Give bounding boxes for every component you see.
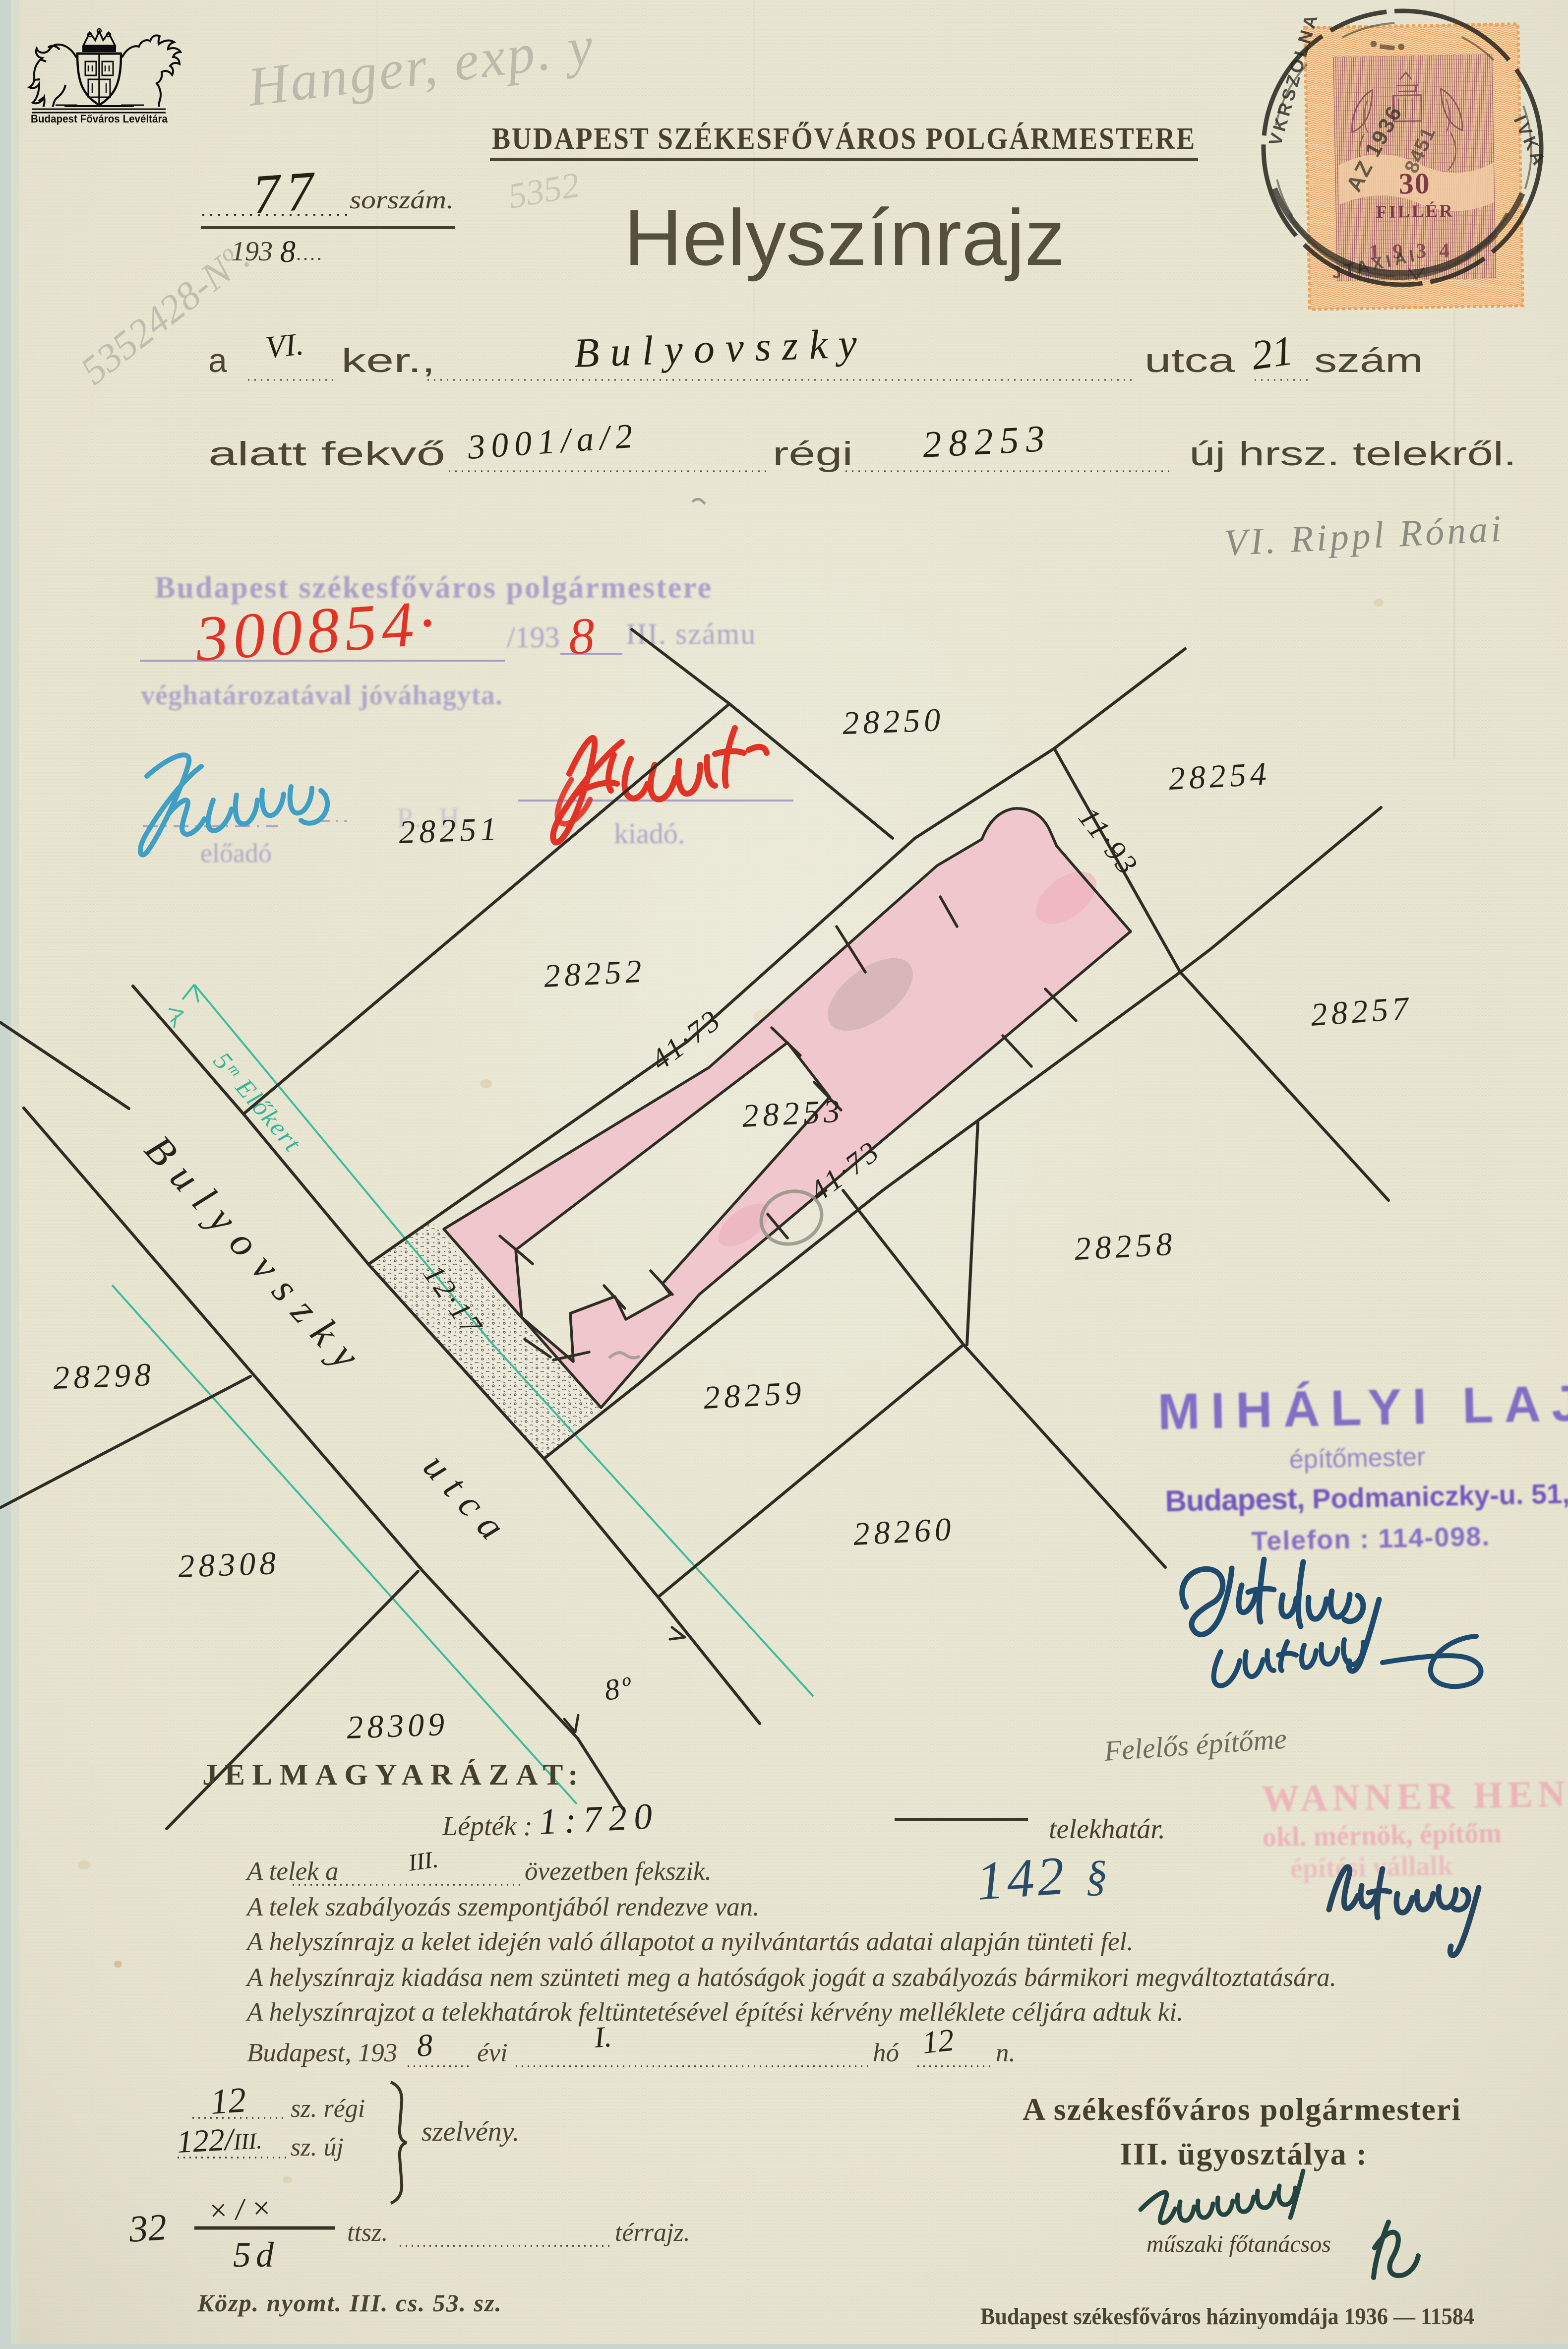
svg-text:műszaki főtanácsos: műszaki főtanácsos [1146, 2231, 1331, 2257]
svg-text:193: 193 [231, 236, 273, 267]
svg-text:Telefon : 114-098.: Telefon : 114-098. [1251, 1522, 1491, 1556]
svg-text:véghatározatával jóváhagyta.: véghatározatával jóváhagyta. [141, 680, 503, 711]
svg-text:VI.: VI. [264, 326, 305, 365]
svg-text:Helyszínrajz: Helyszínrajz [624, 193, 1065, 282]
svg-text:MIHÁLYI LAJOS: MIHÁLYI LAJOS [1157, 1372, 1568, 1440]
svg-text:A helyszínrajzot a telekhatáro: A helyszínrajzot a telekhatárok feltünte… [245, 1998, 1183, 2027]
svg-text:WANNER HENR: WANNER HENR [1262, 1772, 1568, 1820]
svg-text:előadó: előadó [200, 838, 272, 868]
svg-text:BUDAPEST SZÉKESFŐVÁROS POLGÁRM: BUDAPEST SZÉKESFŐVÁROS POLGÁRMESTERE [492, 122, 1196, 156]
svg-text:A telek a: A telek a [245, 1857, 338, 1886]
svg-text:28260: 28260 [852, 1511, 956, 1552]
svg-text:építőmester: építőmester [1289, 1442, 1426, 1474]
svg-text:szelvény.: szelvény. [422, 2116, 519, 2147]
svg-text:FILLÉR: FILLÉR [1376, 201, 1454, 222]
svg-text:ttsz.: ttsz. [347, 2219, 388, 2247]
svg-text:kiadó.: kiadó. [614, 817, 685, 850]
svg-text:szám: szám [1314, 342, 1423, 379]
svg-text:12: 12 [920, 2022, 956, 2060]
svg-text:övezetben fekszik.: övezetben fekszik. [525, 1857, 712, 1886]
svg-text:8: 8 [280, 235, 296, 269]
svg-text:régi: régi [773, 435, 853, 473]
svg-text:építési vállalk: építési vállalk [1290, 1851, 1453, 1884]
svg-text:28253: 28253 [741, 1093, 845, 1134]
svg-text:sz. régi: sz. régi [291, 2095, 365, 2123]
svg-text:I.: I. [593, 2020, 613, 2054]
svg-text:III. ügyosztálya :: III. ügyosztálya : [1120, 2136, 1368, 2171]
svg-text:28254: 28254 [1168, 755, 1271, 797]
svg-text:évi: évi [477, 2039, 508, 2067]
svg-text:alatt fekvő: alatt fekvő [208, 435, 445, 473]
svg-text:1:720: 1:720 [538, 1795, 661, 1843]
svg-text:telekhatár.: telekhatár. [1049, 1814, 1165, 1845]
svg-text:A székesfőváros polgármesteri: A székesfőváros polgármesteri [1023, 2092, 1461, 2127]
svg-text:hó: hó [873, 2039, 899, 2067]
svg-text:ker.,: ker., [341, 342, 435, 379]
svg-text:a: a [208, 342, 227, 379]
svg-text:A helyszínrajz a kelet idején: A helyszínrajz a kelet idején való állap… [245, 1927, 1134, 1956]
svg-text:§: § [1085, 1852, 1108, 1901]
svg-text:28258: 28258 [1074, 1226, 1177, 1267]
svg-text:28298: 28298 [53, 1357, 155, 1396]
svg-text:okl. mérnök, építőm: okl. mérnök, építőm [1262, 1818, 1502, 1853]
svg-text:Lépték :: Lépték : [442, 1811, 533, 1842]
svg-text:28251: 28251 [398, 811, 501, 851]
svg-text:Budapest, 193: Budapest, 193 [247, 2039, 397, 2067]
svg-text:32: 32 [127, 2206, 168, 2250]
svg-text:térrajz.: térrajz. [615, 2219, 690, 2247]
svg-text:28259: 28259 [703, 1374, 806, 1416]
svg-text:sz. új: sz. új [291, 2133, 344, 2162]
svg-text:28253: 28253 [921, 417, 1052, 465]
svg-text:Közp. nyomt. III. cs. 53. sz.: Közp. nyomt. III. cs. 53. sz. [197, 2289, 502, 2317]
svg-text:28250: 28250 [842, 702, 945, 742]
svg-text:III.: III. [406, 1846, 440, 1876]
svg-text:12: 12 [209, 2080, 247, 2122]
svg-text:III. számu: III. számu [626, 618, 756, 650]
svg-text:Budapest Főváros Levéltára: Budapest Főváros Levéltára [31, 113, 168, 125]
svg-text:A helyszínrajz kiadása nem szü: A helyszínrajz kiadása nem szünteti meg … [245, 1963, 1336, 1992]
svg-text:8: 8 [416, 2027, 434, 2063]
svg-text:új hrsz. telekről.: új hrsz. telekről. [1189, 435, 1516, 473]
svg-text:n.: n. [996, 2039, 1016, 2067]
svg-text:sorszám.: sorszám. [350, 186, 454, 214]
svg-text:Budapest székesfőváros házinyo: Budapest székesfőváros házinyomdája 1936… [980, 2303, 1474, 2330]
svg-text:8º: 8º [603, 1670, 636, 1707]
svg-text:77: 77 [250, 160, 322, 226]
svg-text:28257: 28257 [1310, 990, 1414, 1033]
svg-text:utca: utca [1145, 342, 1235, 379]
svg-text:21: 21 [1249, 327, 1296, 379]
svg-text:5d: 5d [233, 2235, 279, 2275]
svg-text:8: 8 [568, 607, 596, 665]
svg-text:JELMAGYARÁZAT:: JELMAGYARÁZAT: [202, 1758, 585, 1791]
svg-text:/193: /193 [507, 621, 560, 654]
svg-text:A telek szabályozás szempontjá: A telek szabályozás szempontjából rendez… [245, 1893, 759, 1921]
svg-text:28252: 28252 [543, 953, 647, 994]
svg-text:28308: 28308 [178, 1545, 280, 1585]
svg-text:×/×: ×/× [207, 2191, 279, 2228]
svg-text:142: 142 [974, 1845, 1069, 1911]
svg-text:28309: 28309 [346, 1706, 449, 1746]
